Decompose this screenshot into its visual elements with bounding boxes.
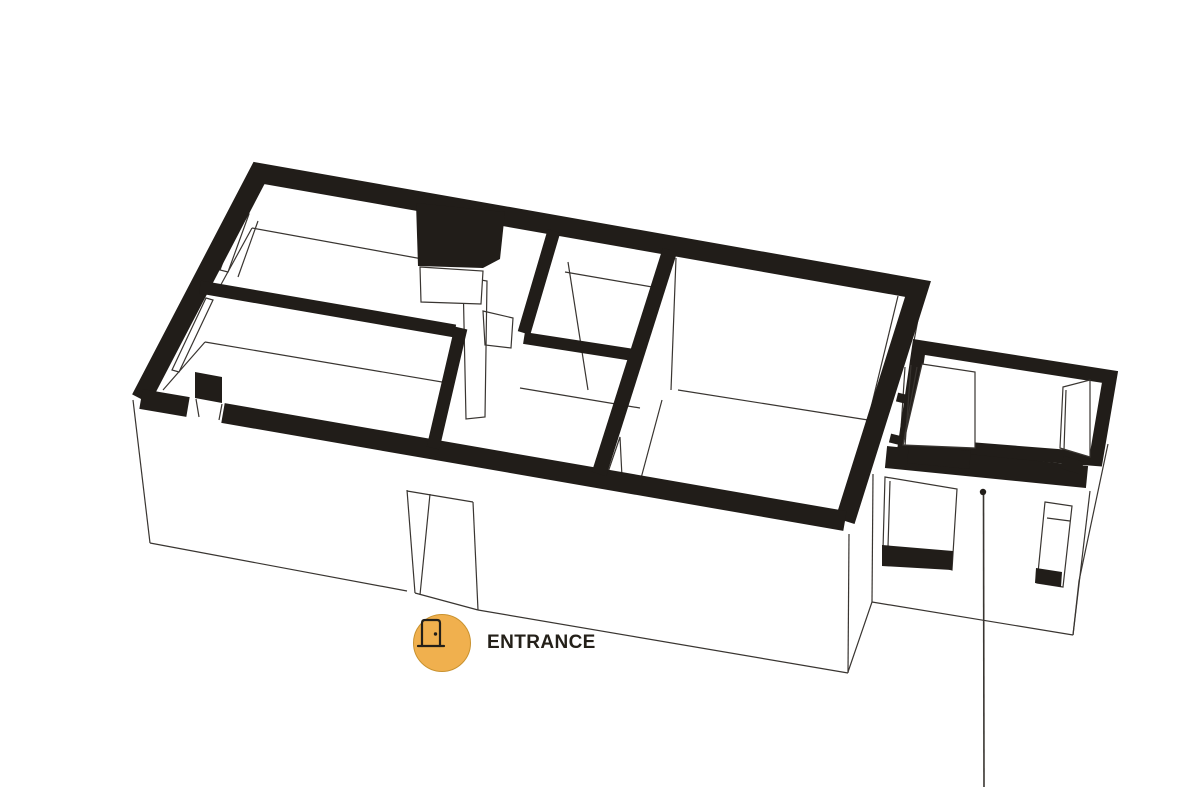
- hall-door-edge: [640, 400, 662, 482]
- floor-plan-drawing: [0, 0, 1200, 788]
- annex-left-sill-mass: [908, 454, 970, 460]
- front-face-left-edge: [133, 400, 150, 543]
- room3-backwall-floor-line: [565, 272, 658, 288]
- interior-lines: [163, 212, 911, 482]
- front-wall-right-segment: [223, 413, 845, 521]
- leader-dot: [980, 489, 986, 495]
- front-face-bottom-left: [150, 543, 407, 591]
- left-opening-reveal-a: [196, 399, 199, 417]
- floor-plan-canvas: ENTRANCE: [0, 0, 1200, 788]
- door-icon: [414, 615, 448, 651]
- door-jamb-stub: [195, 372, 222, 403]
- room4-backwall-floor-line: [678, 390, 868, 420]
- annex-face-bottom-edge: [872, 602, 1073, 635]
- annex-doorway-tab-upper: [897, 397, 909, 400]
- entrance-door-lintel: [407, 491, 473, 502]
- room1-backwall-floor-line: [252, 228, 428, 260]
- ground-edge: [848, 602, 872, 672]
- entrance-door-left-jamb: [407, 490, 415, 593]
- room4-leftwall-floor-line: [671, 258, 676, 390]
- annex-doorway-tab-lower: [890, 438, 902, 441]
- entrance-door-right-jamb: [473, 502, 478, 610]
- vestibule-door-reveal: [483, 311, 513, 348]
- exterior-walls: [141, 173, 918, 521]
- room3-sidewall-floor-line: [568, 262, 588, 390]
- left-opening-reveal-b: [219, 404, 222, 420]
- annex-face-left-edge: [872, 474, 873, 602]
- annex-interior: [903, 364, 1090, 457]
- closet-block: [416, 203, 505, 268]
- interior-walls: [195, 203, 670, 474]
- entrance-door-reveal: [420, 494, 430, 595]
- front-wall-left-segment: [141, 399, 188, 407]
- closet-front-face: [420, 267, 483, 304]
- front-face-right-edge: [848, 534, 849, 673]
- leader-line: [984, 495, 985, 787]
- entrance-label: ENTRANCE: [487, 632, 596, 654]
- annex-inner-window-sill: [1062, 462, 1082, 468]
- leader-annotation: [980, 489, 986, 787]
- room2-backwall-floor-line: [205, 342, 448, 383]
- partition-wall-1: [200, 287, 455, 331]
- entrance-marker[interactable]: [413, 614, 471, 672]
- partition-wall-3: [524, 231, 554, 333]
- partition-wall-2: [433, 328, 461, 448]
- entrance-door-threshold: [415, 593, 478, 610]
- annex-side-corner-edge: [1073, 581, 1079, 635]
